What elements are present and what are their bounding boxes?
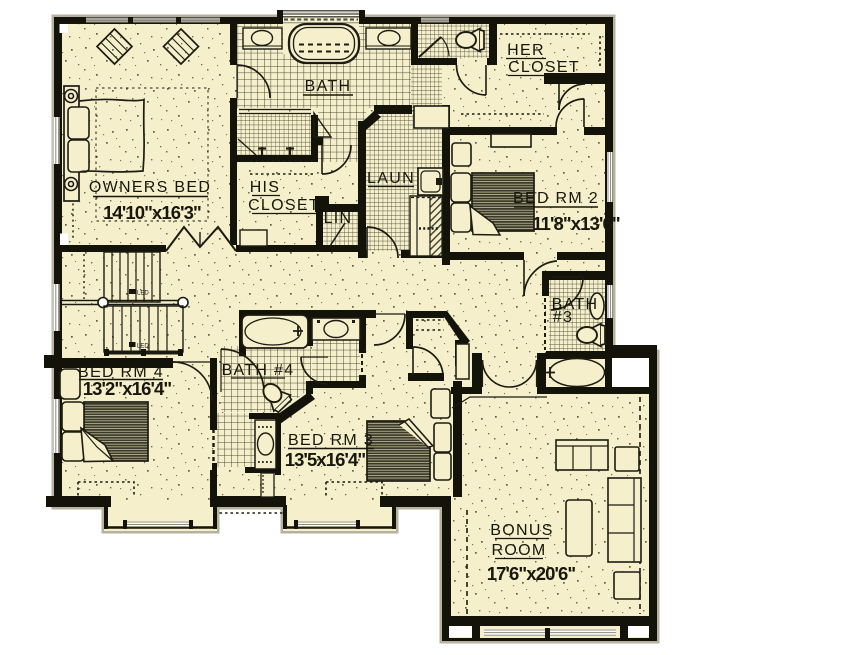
svg-text:CLOSET: CLOSET [248, 197, 320, 214]
svg-text:BED RM 2: BED RM 2 [513, 190, 599, 207]
svg-text:OWNERS BED: OWNERS BED [89, 179, 211, 196]
svg-text:BATH #4: BATH #4 [222, 362, 295, 379]
svg-text:HER: HER [507, 42, 545, 59]
svg-text:CLOSET: CLOSET [508, 59, 580, 76]
svg-text:#3: #3 [553, 309, 573, 326]
svg-text:BATH: BATH [305, 78, 352, 95]
svg-text:BONUS: BONUS [490, 522, 553, 539]
svg-text:13'2"x16'4": 13'2"x16'4" [83, 378, 172, 399]
svg-text:14'10"x16'3": 14'10"x16'3" [103, 202, 201, 223]
svg-text:11'8"x13'6": 11'8"x13'6" [532, 213, 620, 234]
svg-text:ROOM: ROOM [492, 542, 547, 559]
svg-text:HIS: HIS [250, 179, 281, 196]
svg-text:LIN: LIN [324, 210, 353, 227]
svg-text:13'5x16'4": 13'5x16'4" [285, 449, 366, 470]
svg-text:LED: LED [137, 291, 149, 297]
svg-text:17'6"x20'6": 17'6"x20'6" [487, 563, 576, 584]
svg-text:BED RM 3: BED RM 3 [288, 432, 374, 449]
svg-text:LED: LED [137, 344, 149, 350]
svg-text:LAUN: LAUN [367, 170, 415, 187]
